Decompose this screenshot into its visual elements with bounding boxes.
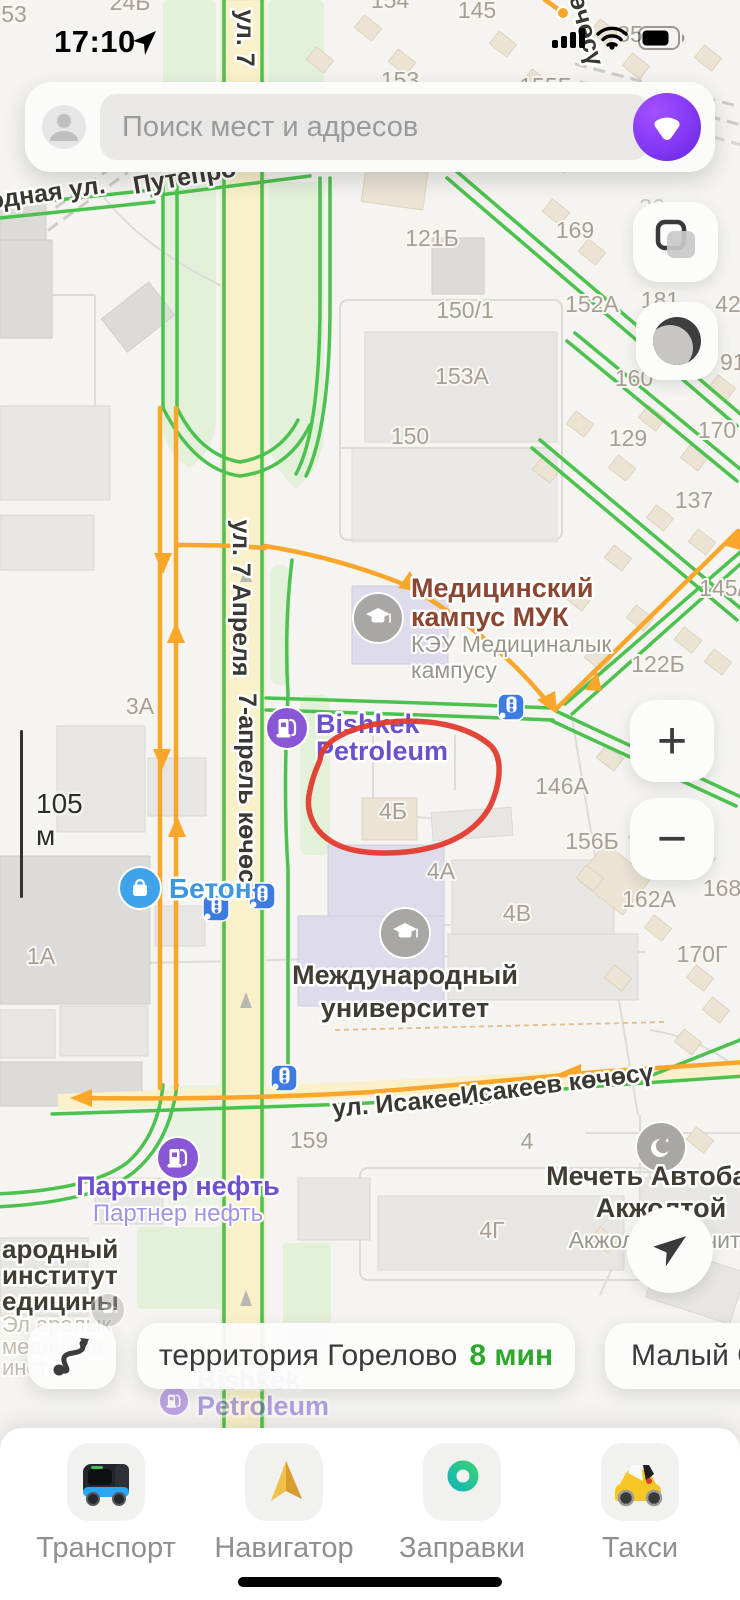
svg-text:162А: 162А bbox=[622, 886, 676, 912]
svg-text:кампус МУК: кампус МУК bbox=[411, 602, 569, 632]
wifi-icon bbox=[596, 26, 628, 55]
bus-icon bbox=[77, 1453, 135, 1511]
scale-ruler bbox=[20, 730, 23, 898]
my-location-icon bbox=[648, 1228, 692, 1272]
poi-shop[interactable]: Бетон bbox=[119, 867, 252, 909]
map-layers-icon bbox=[650, 216, 702, 268]
battery-icon bbox=[638, 26, 686, 55]
svg-text:121Б: 121Б bbox=[405, 225, 458, 251]
location-active-icon bbox=[130, 28, 160, 63]
svg-text:153А: 153А bbox=[435, 363, 489, 389]
svg-text:Petroleum: Petroleum bbox=[197, 1391, 329, 1421]
search-input[interactable]: Поиск мест и адресов bbox=[100, 94, 649, 160]
plus-icon: + bbox=[657, 711, 687, 771]
app-shortcuts-panel: Транспорт Навигатор Заправки Такси bbox=[0, 1428, 740, 1600]
profile-avatar[interactable] bbox=[42, 105, 86, 149]
svg-text:156Б: 156Б bbox=[565, 828, 618, 854]
search-placeholder: Поиск мест и адресов bbox=[122, 111, 418, 144]
home-indicator[interactable] bbox=[238, 1577, 502, 1587]
alice-assistant-button[interactable] bbox=[633, 93, 701, 161]
route-curve-icon bbox=[46, 1330, 98, 1382]
svg-text:4А: 4А bbox=[427, 858, 456, 884]
route-button[interactable] bbox=[28, 1323, 116, 1389]
svg-text:170: 170 bbox=[698, 417, 736, 443]
destination-name: Малый С bbox=[631, 1339, 740, 1373]
svg-text:университет: университет bbox=[321, 993, 489, 1023]
svg-text:42: 42 bbox=[715, 291, 740, 317]
taxi-car-icon bbox=[611, 1453, 669, 1511]
traffic-toggle-button[interactable] bbox=[636, 302, 718, 380]
svg-text:4Б: 4Б bbox=[379, 798, 407, 824]
svg-text:145/2: 145/2 bbox=[699, 575, 740, 601]
svg-text:кампусу: кампусу bbox=[411, 657, 497, 683]
destination-eta: 8 мин bbox=[469, 1339, 553, 1373]
svg-text:137: 137 bbox=[675, 487, 713, 513]
traffic-light-icon bbox=[271, 1065, 297, 1091]
traffic-light-icon bbox=[498, 694, 524, 720]
svg-text:168: 168 bbox=[703, 875, 740, 901]
svg-text:Партнер нефть: Партнер нефть bbox=[76, 1171, 280, 1201]
svg-text:159: 159 bbox=[290, 1127, 328, 1153]
map-scale: 105 м bbox=[20, 730, 23, 898]
app-label-transport: Транспорт bbox=[16, 1532, 196, 1565]
app-tile-transport[interactable] bbox=[67, 1443, 145, 1521]
road-events-icon bbox=[651, 315, 703, 367]
svg-text:7-апрель көчөсү: 7-апрель көчөсү bbox=[233, 693, 261, 897]
svg-text:152А: 152А bbox=[565, 291, 619, 317]
svg-text:146А: 146А bbox=[535, 773, 589, 799]
app-label-fuel: Заправки bbox=[372, 1532, 552, 1565]
fuel-pump-icon bbox=[433, 1453, 491, 1511]
search-bar[interactable]: Поиск мест и адресов bbox=[25, 82, 715, 172]
status-bar: 17:10 bbox=[0, 0, 740, 60]
svg-text:150: 150 bbox=[391, 423, 429, 449]
clock: 17:10 bbox=[54, 24, 136, 60]
svg-text:3А: 3А bbox=[126, 693, 155, 719]
my-location-button[interactable] bbox=[627, 1207, 713, 1293]
minus-icon: − bbox=[657, 809, 687, 869]
destination-name: территория Горелово bbox=[159, 1339, 457, 1373]
svg-text:ул. 7 Апреля: ул. 7 Апреля bbox=[227, 520, 255, 677]
svg-text:КЭУ Медициналык: КЭУ Медициналык bbox=[411, 631, 612, 657]
svg-text:Бетон: Бетон bbox=[169, 873, 252, 904]
suggestion-cards: территория Горелово 8 мин Малый С bbox=[0, 1323, 740, 1389]
svg-text:91/: 91/ bbox=[720, 349, 740, 375]
app-tile-fuel[interactable] bbox=[423, 1443, 501, 1521]
svg-text:170Г: 170Г bbox=[677, 941, 728, 967]
yandex-maps-app: 5324Б154145153155Б35121Б16936150/1152А18… bbox=[0, 0, 740, 1600]
svg-text:Международный: Международный bbox=[292, 960, 518, 990]
app-label-taxi: Такси bbox=[550, 1532, 730, 1565]
nav-arrow-icon bbox=[255, 1453, 313, 1511]
destination-card-maly[interactable]: Малый С bbox=[605, 1323, 740, 1389]
svg-text:Мечеть Автобаза: Мечеть Автобаза bbox=[546, 1161, 740, 1191]
svg-text:Медицинский: Медицинский bbox=[411, 573, 593, 603]
scale-label: 105 м bbox=[36, 788, 83, 852]
app-tile-navigator[interactable] bbox=[245, 1443, 323, 1521]
svg-text:1А: 1А bbox=[27, 943, 56, 969]
app-tile-taxi[interactable] bbox=[601, 1443, 679, 1521]
cellular-signal-icon bbox=[552, 27, 586, 54]
poi-edu[interactable] bbox=[91, 1293, 125, 1327]
zoom-in-button[interactable]: + bbox=[630, 700, 714, 782]
zoom-out-button[interactable]: − bbox=[630, 798, 714, 880]
svg-text:150/1: 150/1 bbox=[436, 297, 494, 323]
svg-text:4: 4 bbox=[521, 1128, 534, 1154]
svg-text:122Б: 122Б bbox=[631, 651, 684, 677]
destination-card-gorelovo[interactable]: территория Горелово 8 мин bbox=[137, 1323, 575, 1389]
svg-text:4Г: 4Г bbox=[479, 1217, 505, 1243]
svg-text:4В: 4В bbox=[503, 900, 531, 926]
alice-icon bbox=[648, 108, 686, 146]
svg-text:Партнер нефть: Партнер нефть bbox=[93, 1200, 263, 1227]
svg-text:129: 129 bbox=[609, 425, 647, 451]
layers-button[interactable] bbox=[633, 202, 718, 282]
app-label-navigator: Навигатор bbox=[194, 1532, 374, 1565]
svg-text:169: 169 bbox=[556, 217, 594, 243]
